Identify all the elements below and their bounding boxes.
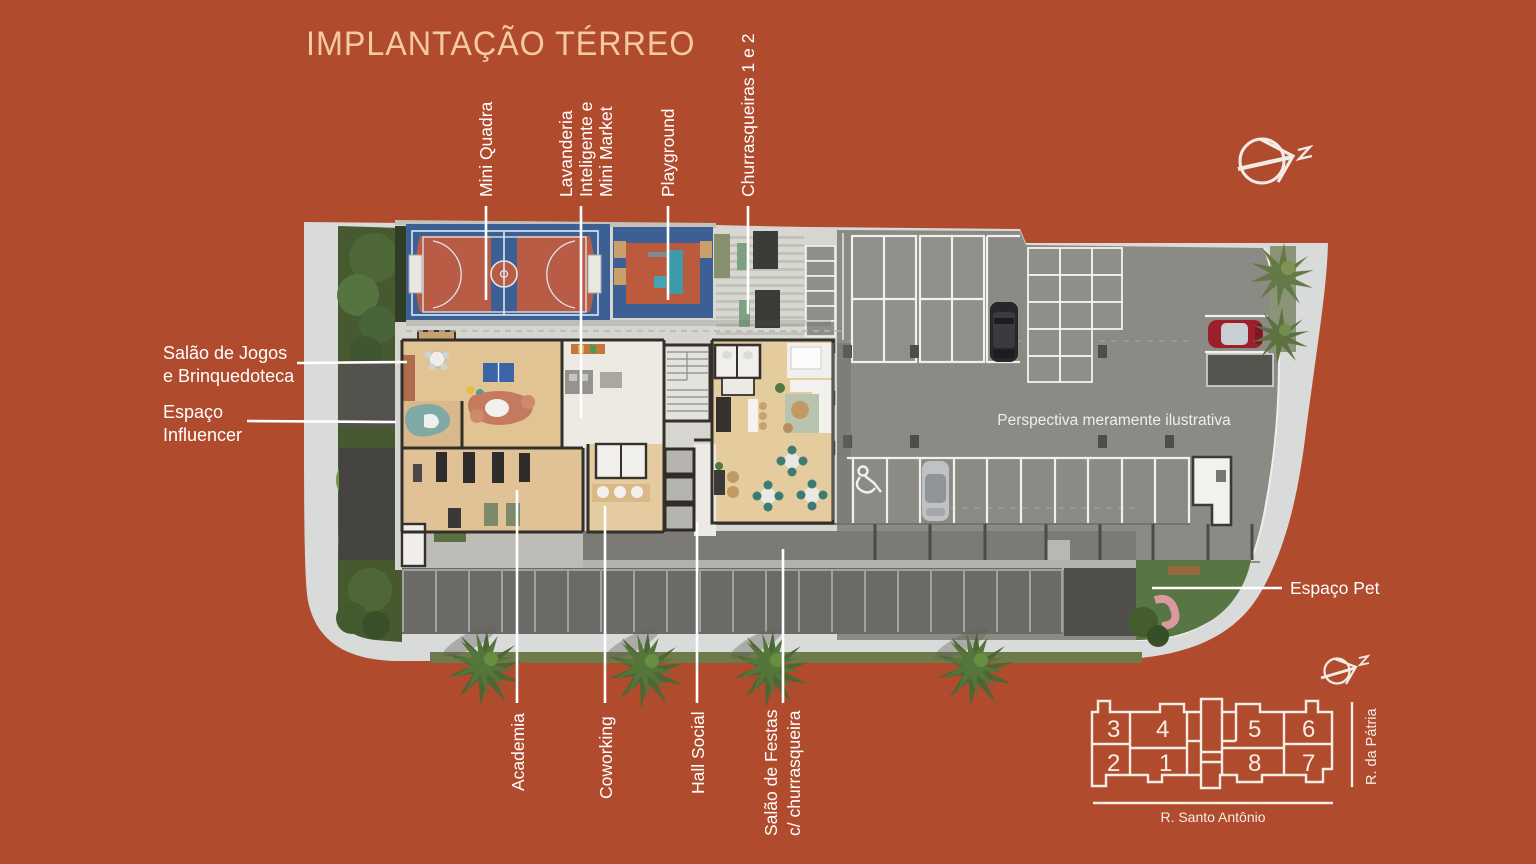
svg-text:e Brinquedoteca: e Brinquedoteca — [163, 366, 295, 386]
svg-text:Inteligente e: Inteligente e — [576, 102, 596, 197]
svg-text:c/ churrasqueira: c/ churrasqueira — [784, 710, 804, 836]
svg-text:5: 5 — [1248, 716, 1261, 743]
svg-text:Academia: Academia — [508, 713, 528, 791]
svg-text:Influencer: Influencer — [163, 425, 242, 445]
svg-text:Salão de Festas: Salão de Festas — [761, 709, 781, 836]
svg-text:R. da Pátria: R. da Pátria — [1364, 708, 1380, 785]
svg-text:Perspectiva meramente ilustrat: Perspectiva meramente ilustrativa — [997, 412, 1231, 429]
svg-text:IMPLANTAÇÃO TÉRREO: IMPLANTAÇÃO TÉRREO — [306, 24, 695, 63]
svg-text:2: 2 — [1107, 750, 1120, 777]
svg-text:Hall Social: Hall Social — [688, 711, 708, 794]
svg-text:Playground: Playground — [658, 108, 678, 197]
svg-text:Lavanderia: Lavanderia — [556, 110, 576, 197]
svg-text:Salão de Jogos: Salão de Jogos — [163, 343, 287, 363]
svg-text:Mini Market: Mini Market — [596, 106, 616, 197]
svg-text:Espaço: Espaço — [163, 402, 223, 422]
svg-text:4: 4 — [1156, 716, 1169, 743]
svg-text:Churrasqueiras 1 e 2: Churrasqueiras 1 e 2 — [738, 34, 758, 197]
svg-text:1: 1 — [1159, 750, 1172, 777]
svg-text:Coworking: Coworking — [596, 716, 616, 799]
svg-text:3: 3 — [1107, 716, 1120, 743]
svg-text:8: 8 — [1248, 750, 1261, 777]
svg-text:Espaço Pet: Espaço Pet — [1290, 578, 1380, 598]
svg-text:R. Santo Antônio: R. Santo Antônio — [1160, 809, 1265, 825]
svg-text:7: 7 — [1302, 750, 1315, 777]
svg-text:Mini Quadra: Mini Quadra — [476, 101, 496, 197]
svg-text:6: 6 — [1302, 716, 1315, 743]
